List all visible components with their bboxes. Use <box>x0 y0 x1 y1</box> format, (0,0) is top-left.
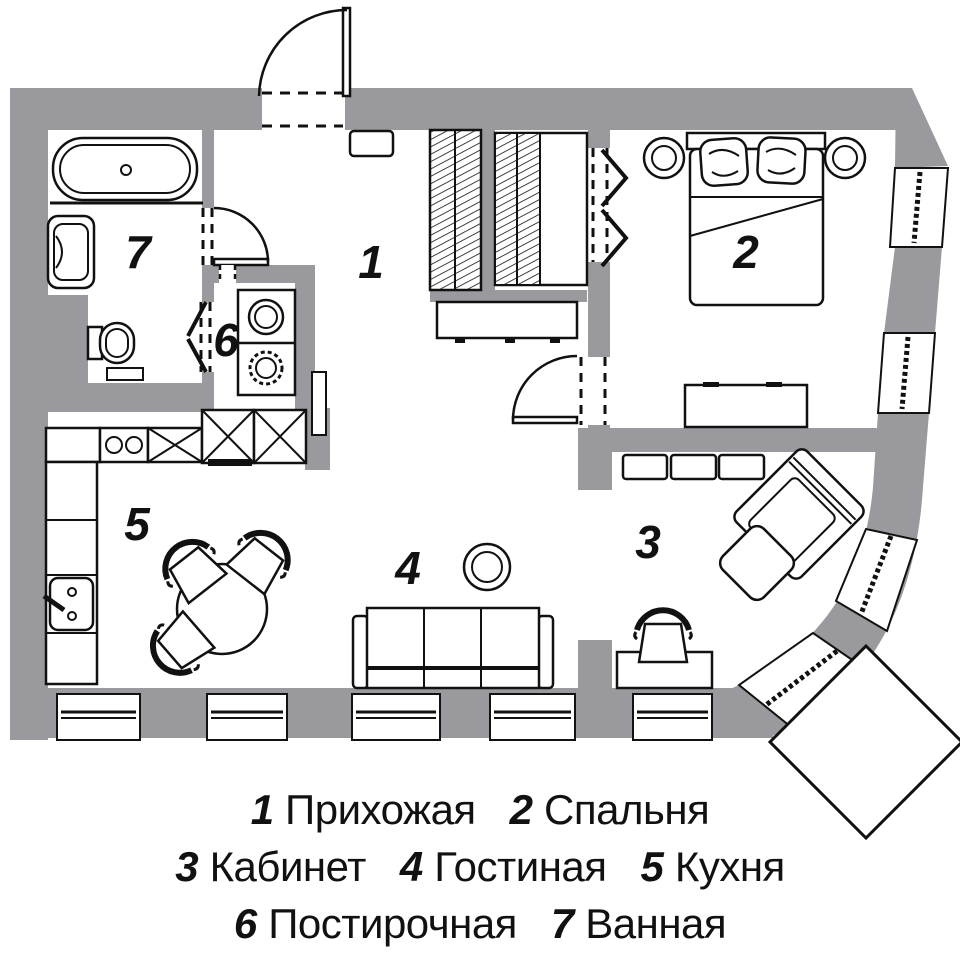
window-bottom-5 <box>633 694 712 740</box>
washing-machine <box>249 300 283 334</box>
room-label-bathroom: 7 <box>125 226 153 278</box>
floor-plan-page: 1 2 3 4 5 6 7 1 Прихожая 2 Спальня 3 Каб… <box>0 0 960 960</box>
counter-edge <box>208 459 252 466</box>
wardrobe-1 <box>430 130 481 290</box>
room-label-living: 4 <box>394 542 421 594</box>
corner-wall-ne <box>895 88 948 168</box>
dryer <box>250 352 282 384</box>
pillow <box>757 137 806 184</box>
hall-bed-wall-a <box>588 125 610 148</box>
legend-item-office: 3 Кабинет <box>175 843 366 891</box>
wardrobe-divider-wall <box>481 130 495 290</box>
room-label-office: 3 <box>635 516 661 568</box>
top-wall-right <box>345 88 898 130</box>
window-bottom-4 <box>490 694 575 740</box>
legend-item-bathroom: 7 Ванная <box>551 900 726 948</box>
nightstand-lamp-right <box>825 138 865 178</box>
bedroom-swing-door <box>513 356 605 425</box>
legend-item-laundry: 6 Постирочная <box>234 900 517 948</box>
counter-left <box>46 462 97 684</box>
legend-item-kitchen: 5 Кухня <box>641 843 785 891</box>
pouf <box>464 544 510 590</box>
counter-corner <box>46 428 100 462</box>
entry-shelf <box>350 131 393 156</box>
room-label-kitchen: 5 <box>124 498 151 550</box>
bath-wall-a <box>202 130 214 208</box>
console-table <box>437 302 577 343</box>
double-bed <box>687 133 825 305</box>
dresser <box>685 382 807 427</box>
legend-item-bedroom: 2 Спальня <box>510 786 710 834</box>
wardrobe-2 <box>495 133 587 285</box>
laundry-hatch-opening <box>219 265 236 283</box>
kitchen <box>44 372 326 685</box>
bath-niche <box>107 368 143 380</box>
bathroom-door <box>203 208 268 265</box>
nightstand-lamp-left <box>644 138 684 178</box>
sink <box>48 216 94 288</box>
shelf-box <box>623 455 667 479</box>
right-wall-pier-2 <box>873 413 929 487</box>
window-bottom-2 <box>207 694 287 740</box>
window-right-2 <box>878 333 935 413</box>
kitchen-sink <box>44 578 93 630</box>
pillow <box>699 137 748 186</box>
living-office-stub-top <box>578 428 612 490</box>
below-bath-wall <box>88 383 214 412</box>
cabinet-x-small <box>148 428 202 462</box>
under-wardrobe-wall <box>430 290 587 302</box>
legend: 1 Прихожая 2 Спальня 3 Кабинет 4 Гостина… <box>0 786 960 948</box>
bath-step-wall <box>48 295 88 412</box>
legend-row-2: 3 Кабинет 4 Гостиная 5 Кухня <box>175 843 785 891</box>
window-bottom-1 <box>57 694 140 740</box>
cabinet-x-tall-2 <box>254 410 306 463</box>
room-label-laundry: 6 <box>213 314 239 366</box>
shelf-box <box>671 455 716 479</box>
toilet <box>88 323 134 363</box>
laundry-bifold-door <box>188 302 210 372</box>
legend-item-hallway: 1 Прихожая <box>251 786 476 834</box>
bath-wall-c <box>202 372 214 412</box>
hallway <box>350 130 587 343</box>
cabinet-x-tall-1 <box>202 410 254 463</box>
laundry <box>238 290 295 395</box>
room-label-bedroom: 2 <box>732 226 759 278</box>
living-office-stub-bottom <box>578 640 612 695</box>
bedroom <box>644 133 865 427</box>
tall-cabinet-slot <box>312 372 326 435</box>
bathtub <box>50 138 203 203</box>
window-bottom-3 <box>352 694 440 740</box>
cooktop <box>100 428 148 462</box>
hall-bed-wall-b <box>588 262 610 357</box>
bedroom-bottom-wall <box>588 428 883 452</box>
legend-row-3: 6 Постирочная 7 Ванная <box>234 900 726 948</box>
room-label-hallway: 1 <box>358 236 384 288</box>
window-right-1 <box>890 168 948 247</box>
right-wall-pier-1 <box>884 247 942 333</box>
legend-item-living: 4 Гостиная <box>400 843 607 891</box>
bedroom-bifold-door <box>593 148 626 266</box>
shelf-box <box>719 455 764 479</box>
entry-door <box>259 8 350 126</box>
sofa <box>353 608 553 688</box>
left-wall <box>10 88 48 740</box>
legend-row-1: 1 Прихожая 2 Спальня <box>251 786 710 834</box>
desk-chair <box>635 610 692 662</box>
living-room <box>353 544 553 688</box>
